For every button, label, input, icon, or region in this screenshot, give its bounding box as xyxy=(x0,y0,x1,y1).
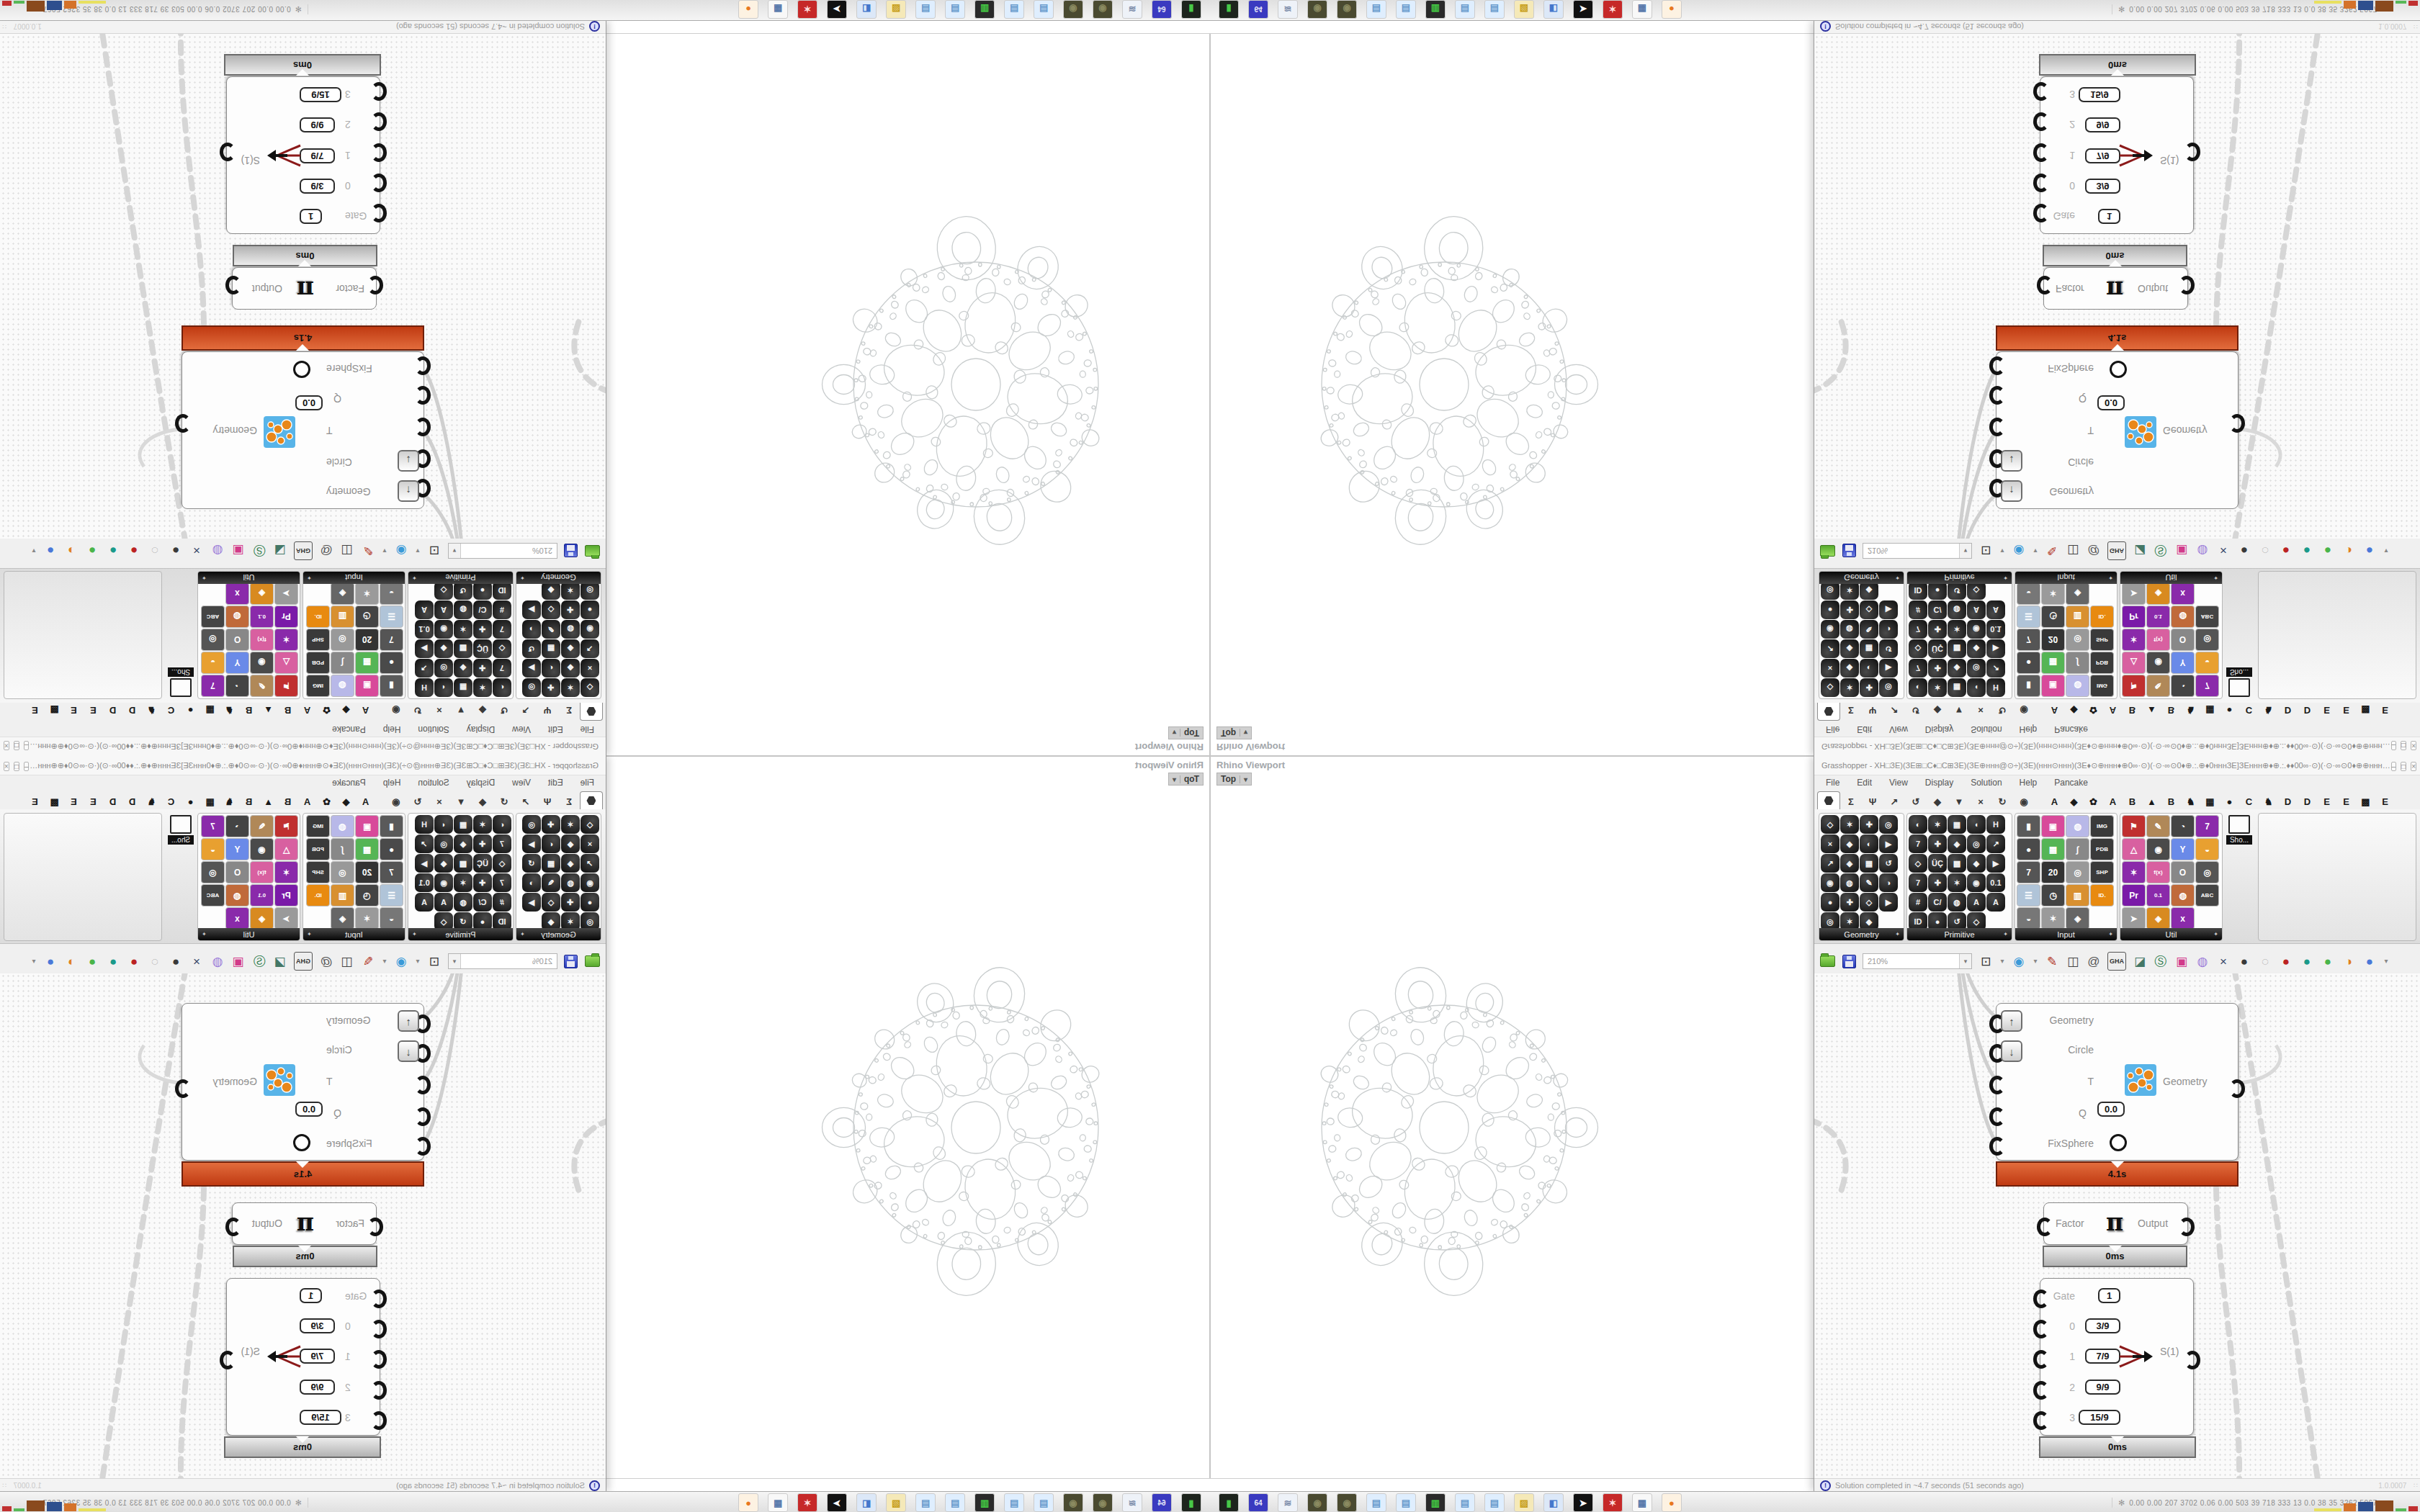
series-value-field[interactable]: 9/9 xyxy=(2085,1380,2120,1395)
menu-edit[interactable]: Edit xyxy=(1857,724,1872,734)
zoom-extents-button[interactable]: ⊡ xyxy=(1978,953,1993,969)
maximize-button[interactable]: □ xyxy=(2401,762,2406,771)
bulb-button[interactable]: ◍ xyxy=(2195,543,2210,559)
input-socket-q[interactable] xyxy=(415,1107,431,1126)
menu-view[interactable]: View xyxy=(1889,778,1908,788)
flatten-down-icon[interactable]: ↓ xyxy=(398,450,419,472)
component-icon[interactable]: ◎ xyxy=(201,861,225,883)
component-icon[interactable]: ◆ xyxy=(1840,659,1859,678)
bulb-button[interactable]: ◍ xyxy=(210,953,225,969)
zoom-combo[interactable]: 210% ▾ xyxy=(448,953,557,969)
tab-sets[interactable]: Ψ xyxy=(537,703,558,719)
component-icon[interactable]: C/ xyxy=(473,893,492,912)
component-icon[interactable]: ▮ xyxy=(380,815,403,837)
component-icon[interactable]: 7 xyxy=(201,815,225,837)
plugin-tab-12[interactable]: D xyxy=(122,796,142,809)
component-icon[interactable]: 0.1 xyxy=(1986,620,2005,639)
open-file-button[interactable] xyxy=(585,543,600,559)
component-icon[interactable]: ◎ xyxy=(434,834,453,853)
plugin-tab-0[interactable]: A xyxy=(2045,703,2064,716)
stream-filter-component[interactable]: Gate103/917/929/9315/9 S(1) xyxy=(2040,76,2194,234)
component-icon[interactable]: ◆ xyxy=(1967,854,1986,873)
component-icon[interactable]: ◈ xyxy=(1840,639,1859,658)
output-socket-geometry[interactable] xyxy=(2229,414,2245,433)
chevron-down-icon[interactable]: ▾ xyxy=(31,953,37,969)
series-value-field[interactable]: 1 xyxy=(300,1288,322,1303)
chevron-down-icon[interactable]: ▾ xyxy=(2033,543,2038,559)
plugin-tab-15[interactable]: E xyxy=(64,703,84,716)
component-icon[interactable]: ▣ xyxy=(355,815,379,837)
tab-display[interactable]: ◉ xyxy=(2013,703,2035,719)
component-icon[interactable]: ✚ xyxy=(473,834,492,853)
component-icon[interactable]: ◐ xyxy=(542,834,560,853)
component-icon[interactable]: ◍ xyxy=(2066,815,2089,837)
component-icon[interactable]: ▩ xyxy=(454,854,472,873)
component-icon[interactable]: ✶ xyxy=(473,815,492,834)
plugin-tab-9[interactable]: ● xyxy=(181,703,200,716)
grasshopper-window[interactable]: Grasshopper - XH□ЗЕ)(ЗЕ⊞□C♦□C⊞ЗЕ)(ЗЕ⊕ннн… xyxy=(0,21,606,756)
plugin-tab-2[interactable]: ✿ xyxy=(317,703,336,716)
component-icon[interactable]: ◆ xyxy=(561,659,580,678)
zoom-extents-button[interactable]: ⊡ xyxy=(1978,543,1993,559)
input-socket-t[interactable] xyxy=(415,418,431,436)
sketch-pen-button[interactable]: ✎ xyxy=(361,543,375,559)
component-icon[interactable]: ↗ xyxy=(1986,834,2005,853)
component-icon[interactable]: ◉ xyxy=(1967,620,1986,639)
component-icon[interactable]: ● xyxy=(581,600,599,619)
component-icon[interactable]: ✚ xyxy=(473,873,492,892)
component-icon[interactable]: ◍ xyxy=(1948,893,1966,912)
grasshopper-window[interactable]: Grasshopper - XH□ЗЕ)(ЗЕ⊞□C♦□C⊞ЗЕ)(ЗЕ⊕ннн… xyxy=(1814,21,2420,756)
series-value-field[interactable]: 9/9 xyxy=(300,117,335,132)
component-icon[interactable]: ✶ xyxy=(2041,582,2065,605)
maximize-button[interactable]: □ xyxy=(2401,741,2406,750)
drive-green-icon[interactable]: ▮ xyxy=(1181,0,1201,19)
firefox-icon[interactable]: ● xyxy=(1662,0,1682,19)
component-icon[interactable]: ↗ xyxy=(415,834,434,853)
zoom-extents-button[interactable]: ⊡ xyxy=(427,543,442,559)
grasshopper-canvas[interactable]: ↑ ↓ Geometry Circle T Q FixSphere 0.0 xyxy=(1814,973,2420,1478)
component-icon[interactable]: H xyxy=(415,815,434,834)
save-file-button[interactable] xyxy=(1842,953,1856,969)
box-display-button[interactable]: ◫ xyxy=(340,953,354,969)
firefox-icon[interactable]: ● xyxy=(1662,1493,1682,1512)
close-button[interactable]: × xyxy=(2411,762,2416,771)
component-icon[interactable]: ◑ xyxy=(522,620,541,639)
plugin-tab-3[interactable]: A xyxy=(297,703,317,716)
box-display-button[interactable]: ◫ xyxy=(340,543,354,559)
help-box-button[interactable]: ▣ xyxy=(2174,543,2189,559)
component-icon[interactable]: ▥ xyxy=(331,606,354,628)
component-icon[interactable]: Y xyxy=(2171,652,2195,674)
plugin-tab-6[interactable]: B xyxy=(2161,796,2181,809)
grasshopper-title-bar[interactable]: Grasshopper - XH□ЗЕ)(ЗЕ⊞□C♦□C⊞ЗЕ)(ЗЕ⊕ннн… xyxy=(0,737,606,756)
component-icon[interactable]: ↗ xyxy=(1821,854,1839,873)
flatten-down-icon[interactable]: ↓ xyxy=(398,1040,419,1062)
help-box-button[interactable]: ▣ xyxy=(2174,953,2189,969)
component-icon[interactable]: C/ xyxy=(473,600,492,619)
help-box-button[interactable]: ▣ xyxy=(231,953,246,969)
pi-component[interactable]: Factor π Output xyxy=(2043,1202,2188,1245)
component-icon[interactable]: ▦ xyxy=(542,639,560,658)
component-icon[interactable]: ◇ xyxy=(493,854,511,873)
drive-green-icon[interactable]: ▮ xyxy=(1181,1493,1201,1512)
plugin-tab-7[interactable]: ♞ xyxy=(220,796,239,809)
component-icon[interactable]: ▶ xyxy=(1879,834,1898,853)
menu-solution[interactable]: Solution xyxy=(418,778,449,788)
component-icon[interactable]: ✶ xyxy=(1948,873,1966,892)
q-value-field[interactable]: 0.0 xyxy=(295,395,323,410)
plugin-tab-12[interactable]: D xyxy=(2278,703,2298,716)
component-icon[interactable]: ✶ xyxy=(1840,678,1859,697)
menu-pancake[interactable]: Pancake xyxy=(2054,778,2088,788)
component-icon[interactable]: ▶ xyxy=(522,834,541,853)
plugin-tab-9[interactable]: ● xyxy=(181,796,200,809)
rhino-viewport[interactable]: Rhino Viewport Top ▾ xyxy=(604,33,1210,756)
tab-maths[interactable]: Σ xyxy=(558,793,580,809)
component-icon[interactable]: ◒ xyxy=(201,652,225,674)
chevron-down-icon[interactable]: ▾ xyxy=(2383,953,2389,969)
component-icon[interactable]: ✶ xyxy=(274,861,298,883)
firefox-icon[interactable]: ● xyxy=(738,1493,758,1512)
component-icon[interactable]: ● xyxy=(380,838,403,860)
panel-label[interactable]: Primitive✦ xyxy=(408,572,513,584)
component-icon[interactable]: ◎ xyxy=(522,678,541,697)
plugin-tab-9[interactable]: ● xyxy=(2220,796,2239,809)
input-socket-fixsphere[interactable] xyxy=(415,1137,431,1156)
fixsphere-component[interactable]: ↑ ↓ Geometry Circle T Q FixSphere 0.0 xyxy=(181,1003,424,1161)
component-icon[interactable]: ✚ xyxy=(1860,815,1878,834)
chevron-down-icon[interactable]: ▾ xyxy=(1999,543,2005,559)
component-icon[interactable]: ⚑ xyxy=(2122,675,2146,697)
output-socket-geometry[interactable] xyxy=(2229,1079,2245,1098)
menu-pancake[interactable]: Pancake xyxy=(2054,724,2088,734)
component-icon[interactable]: Y xyxy=(225,652,249,674)
input-socket-fixsphere[interactable] xyxy=(1989,356,2005,375)
tab-curve[interactable]: ↺ xyxy=(493,703,515,719)
component-icon[interactable]: 20 xyxy=(2041,629,2065,651)
wires-button[interactable]: × xyxy=(189,953,204,969)
monitor-icon[interactable]: ▥ xyxy=(974,0,995,19)
component-icon[interactable]: ☰ xyxy=(2017,606,2040,628)
output-socket-s1[interactable] xyxy=(220,143,236,161)
tab-transform[interactable]: ↻ xyxy=(407,793,429,809)
output-socket-s1[interactable] xyxy=(2184,143,2200,161)
component-icon[interactable]: ◷ xyxy=(2041,884,2065,906)
component-icon[interactable]: ◎ xyxy=(2195,861,2219,883)
component-icon[interactable]: ▣ xyxy=(355,675,379,697)
search-button[interactable]: Ⓢ xyxy=(2154,543,2168,559)
floppy-64-icon[interactable]: 64 xyxy=(1152,1493,1172,1512)
component-icon[interactable]: ✶ xyxy=(2122,629,2146,651)
rhino-viewport[interactable]: Rhino Viewport Top ▾ xyxy=(604,756,1210,1479)
component-icon[interactable]: ➤ xyxy=(274,582,298,605)
input-socket-q[interactable] xyxy=(415,386,431,405)
rhino-viewport[interactable]: Rhino Viewport Top ▾ xyxy=(1210,756,1816,1479)
component-icon[interactable]: ◆ xyxy=(434,854,453,873)
menu-edit[interactable]: Edit xyxy=(548,724,563,734)
component-icon[interactable]: ● xyxy=(380,652,403,674)
component-icon[interactable]: ✶ xyxy=(1928,678,1947,697)
open-file-button[interactable] xyxy=(585,953,600,969)
component-icon[interactable]: ◈ xyxy=(561,854,580,873)
series-value-field[interactable]: 3/9 xyxy=(2085,1318,2120,1333)
zoom-combo[interactable]: 210% ▾ xyxy=(448,543,557,559)
save-file-button[interactable] xyxy=(1842,543,1856,559)
series-value-field[interactable]: 1 xyxy=(300,209,322,224)
component-icon[interactable]: 7 xyxy=(380,629,403,651)
component-icon[interactable]: ✎ xyxy=(250,675,274,697)
plugin-tab-1[interactable]: ◆ xyxy=(336,796,356,809)
menu-help[interactable]: Help xyxy=(2020,778,2038,788)
input-socket-factor[interactable] xyxy=(2037,276,2053,294)
preview-eye-button[interactable]: ◉ xyxy=(2012,543,2026,559)
menu-file[interactable]: File xyxy=(581,724,594,734)
component-icon[interactable]: x xyxy=(225,907,249,930)
component-icon[interactable]: ◎ xyxy=(331,629,354,651)
graft-up-icon[interactable]: ↑ xyxy=(398,1010,419,1032)
component-icon[interactable]: ☰ xyxy=(380,606,403,628)
component-icon[interactable]: ◍ xyxy=(1840,873,1859,892)
component-icon[interactable]: 7 xyxy=(493,620,511,639)
component-icon[interactable]: ⚑ xyxy=(2122,815,2146,837)
component-icon[interactable]: ▶ xyxy=(415,639,434,658)
remote-at-button[interactable]: @ xyxy=(2087,953,2101,969)
component-icon[interactable]: 0.1 xyxy=(415,873,434,892)
component-icon[interactable]: ▦ xyxy=(1948,815,1966,834)
component-icon[interactable]: ∫ xyxy=(331,652,354,674)
component-icon[interactable]: ÜÇ xyxy=(1928,639,1947,658)
component-icon[interactable]: ◉ xyxy=(250,652,274,674)
component-icon[interactable]: ◖ xyxy=(434,815,453,834)
tab-sets[interactable]: Ψ xyxy=(537,793,558,809)
component-icon[interactable]: ✶ xyxy=(2041,907,2065,930)
tab-vector[interactable]: ↗ xyxy=(515,703,537,719)
rhino-viewport[interactable]: Rhino Viewport Top ▾ xyxy=(1210,33,1816,756)
component-icon[interactable]: f(x) xyxy=(250,629,274,651)
component-icon[interactable]: ✶ xyxy=(2122,861,2146,883)
save-file-button[interactable] xyxy=(564,543,578,559)
flatten-down-icon[interactable]: ↓ xyxy=(2001,450,2022,472)
gem-orange-button[interactable]: ◑ xyxy=(2341,543,2356,559)
component-icon[interactable]: Y xyxy=(2171,838,2195,860)
plugin-tab-13[interactable]: D xyxy=(2298,703,2317,716)
plugin-tab-13[interactable]: D xyxy=(2298,796,2317,809)
component-icon[interactable]: ◐ xyxy=(1860,834,1878,853)
component-icon[interactable]: f(x) xyxy=(2146,629,2170,651)
tab-params[interactable] xyxy=(580,703,603,721)
cursor-arrow-icon[interactable]: ➤ xyxy=(827,1493,847,1512)
component-icon[interactable]: ◒ xyxy=(2195,652,2219,674)
component-icon[interactable]: ◍ xyxy=(561,873,580,892)
tab-params[interactable] xyxy=(1817,703,1840,721)
component-icon[interactable]: 7 xyxy=(1909,659,1927,678)
menu-solution[interactable]: Solution xyxy=(1971,724,2002,734)
component-icon[interactable]: ◇ xyxy=(581,815,599,834)
menu-help[interactable]: Help xyxy=(2020,724,2038,734)
maximize-button[interactable]: □ xyxy=(14,762,19,771)
gem-green-button[interactable]: ● xyxy=(85,543,99,559)
tab-mesh[interactable]: ▼ xyxy=(1948,703,1970,719)
component-icon[interactable]: ▩ xyxy=(454,639,472,658)
component-icon[interactable]: x xyxy=(2171,582,2195,605)
panel-label[interactable]: Geometry✦ xyxy=(516,572,601,584)
component-icon[interactable]: ◈ xyxy=(1948,834,1966,853)
component-icon[interactable]: ◐ xyxy=(493,815,511,834)
panel-label[interactable]: Util✦ xyxy=(2120,928,2222,940)
component-icon[interactable]: ☰ xyxy=(380,884,403,906)
component-icon[interactable]: ▦ xyxy=(1948,678,1966,697)
box-display-button[interactable]: ◫ xyxy=(2066,953,2080,969)
component-icon[interactable]: ✶ xyxy=(1928,815,1947,834)
panel-label[interactable]: Util✦ xyxy=(198,928,300,940)
red-badge-icon[interactable]: ✶ xyxy=(1603,1493,1623,1512)
plugin-tab-2[interactable]: ✿ xyxy=(2084,796,2103,809)
component-icon[interactable]: ✎ xyxy=(542,873,560,892)
calculator-icon[interactable]: ▦ xyxy=(768,0,788,19)
preview-shaded-button[interactable]: ● xyxy=(2279,953,2293,969)
graft-up-icon[interactable]: ↑ xyxy=(2001,1010,2022,1032)
component-icon[interactable]: IMG xyxy=(306,675,330,697)
dark-globe-icon[interactable]: ◉ xyxy=(1307,1493,1327,1512)
component-icon[interactable]: ✎ xyxy=(250,815,274,837)
red-badge-icon[interactable]: ✶ xyxy=(797,1493,817,1512)
series-value-field[interactable]: 15/9 xyxy=(2079,87,2120,102)
component-icon[interactable]: PDB xyxy=(306,838,330,860)
remote-at-button[interactable]: @ xyxy=(319,953,333,969)
component-icon[interactable]: O xyxy=(2171,629,2195,651)
chevron-down-icon[interactable]: ▾ xyxy=(1959,544,1971,558)
preview-wire-button[interactable]: ◌ xyxy=(148,953,162,969)
tab-sets[interactable]: Ψ xyxy=(1862,703,1883,719)
output-socket-s1[interactable] xyxy=(2184,1351,2200,1369)
component-icon[interactable]: ◖ xyxy=(434,678,453,697)
component-icon[interactable]: O xyxy=(225,629,249,651)
chevron-down-icon[interactable]: ▾ xyxy=(1240,729,1247,737)
component-icon[interactable]: A xyxy=(415,600,434,619)
monitor-icon[interactable]: ▥ xyxy=(1425,1493,1446,1512)
panel-label[interactable]: Util✦ xyxy=(2120,572,2222,584)
component-icon[interactable]: ◎ xyxy=(2066,861,2089,883)
preview-off-button[interactable]: ● xyxy=(2237,953,2251,969)
component-icon[interactable]: ▦ xyxy=(1860,854,1878,873)
folder-yellow-icon[interactable]: ▨ xyxy=(1514,0,1534,19)
tab-mesh[interactable]: ▼ xyxy=(1948,793,1970,809)
component-icon[interactable]: A xyxy=(415,893,434,912)
zoom-extents-button[interactable]: ⊡ xyxy=(427,953,442,969)
component-icon[interactable]: ◈ xyxy=(331,907,354,930)
panel-label[interactable]: Primitive✦ xyxy=(1907,572,2012,584)
preview-wire-button[interactable]: ◌ xyxy=(2258,953,2272,969)
notepad-icon[interactable]: ▤ xyxy=(1034,1493,1054,1512)
panel-label[interactable]: Primitive✦ xyxy=(1907,928,2012,940)
component-icon[interactable]: # xyxy=(1909,893,1927,912)
component-icon[interactable]: ◈ xyxy=(1840,854,1859,873)
component-icon[interactable]: ◉ xyxy=(250,838,274,860)
component-icon[interactable]: ÜÇ xyxy=(473,854,492,873)
panel-overflow[interactable]: Sho... xyxy=(2226,815,2252,845)
component-icon[interactable]: △ xyxy=(274,838,298,860)
output-socket-output[interactable] xyxy=(225,1218,241,1236)
bulb-button[interactable]: ◍ xyxy=(210,543,225,559)
tab-curve[interactable]: ↺ xyxy=(1905,793,1927,809)
open-file-button[interactable] xyxy=(1820,543,1835,559)
calculator-icon[interactable]: ▦ xyxy=(768,1493,788,1512)
plugin-tab-12[interactable]: D xyxy=(122,703,142,716)
component-icon[interactable]: Pr xyxy=(274,606,298,628)
component-icon[interactable]: # xyxy=(493,893,511,912)
plug-audio-icon[interactable]: ◧ xyxy=(1543,1493,1564,1512)
series-value-field[interactable]: 7/9 xyxy=(300,1349,335,1364)
series-value-field[interactable]: 7/9 xyxy=(2085,148,2120,163)
component-icon[interactable]: △ xyxy=(274,652,298,674)
component-icon[interactable]: ◎ xyxy=(1879,815,1898,834)
component-icon[interactable]: ABC xyxy=(2195,606,2219,628)
component-icon[interactable]: ◑ xyxy=(522,873,541,892)
component-icon[interactable]: Pr xyxy=(274,884,298,906)
component-icon[interactable]: ◎ xyxy=(2195,629,2219,651)
gem-teal-button[interactable]: ● xyxy=(2300,953,2314,969)
doc-capture-button[interactable]: ◪ xyxy=(273,543,287,559)
component-icon[interactable]: ☰ xyxy=(2017,884,2040,906)
q-value-field[interactable]: 0.0 xyxy=(2097,1102,2125,1117)
zoom-combo[interactable]: 210% ▾ xyxy=(1863,543,1972,559)
plugin-tab-16[interactable]: ▩ xyxy=(2356,796,2375,809)
component-icon[interactable]: 7 xyxy=(201,675,225,697)
menu-help[interactable]: Help xyxy=(383,724,401,734)
component-icon[interactable]: ◇ xyxy=(1909,854,1927,873)
preview-eye-button[interactable]: ◉ xyxy=(394,953,408,969)
component-icon[interactable]: ◉ xyxy=(434,873,453,892)
plugin-tab-7[interactable]: ♞ xyxy=(2181,703,2200,716)
doc-capture-button[interactable]: ◪ xyxy=(2133,953,2147,969)
calculator-icon[interactable]: ▦ xyxy=(1632,0,1652,19)
component-icon[interactable]: ◍ xyxy=(2171,884,2195,906)
component-icon[interactable]: ▶ xyxy=(1879,893,1898,912)
box-display-button[interactable]: ◫ xyxy=(2066,543,2080,559)
viewport-tab-top[interactable]: Top ▾ xyxy=(1168,726,1204,739)
grasshopper-canvas[interactable]: ↑ ↓ Geometry Circle T Q FixSphere 0.0 xyxy=(1814,34,2420,539)
component-icon[interactable]: ▮ xyxy=(380,675,403,697)
search-button[interactable]: Ⓢ xyxy=(252,543,266,559)
plug-audio-icon[interactable]: ◧ xyxy=(1543,0,1564,19)
minimize-button[interactable]: – xyxy=(2391,741,2397,750)
component-icon[interactable]: Pr xyxy=(2122,606,2146,628)
plugin-tab-10[interactable]: C xyxy=(2239,703,2259,716)
panel-label[interactable]: Input✦ xyxy=(303,572,405,584)
panel-label[interactable]: Geometry✦ xyxy=(1819,928,1904,940)
flatten-down-icon[interactable]: ↓ xyxy=(2001,1040,2022,1062)
component-icon[interactable]: ✶ xyxy=(561,678,580,697)
component-icon[interactable]: ◍ xyxy=(331,675,354,697)
tab-surface[interactable]: ◆ xyxy=(472,703,493,719)
component-icon[interactable]: ✶ xyxy=(355,582,379,605)
drive-green-icon[interactable]: ▮ xyxy=(1219,1493,1239,1512)
component-icon[interactable]: ✚ xyxy=(1928,620,1947,639)
chevron-down-icon[interactable]: ▾ xyxy=(382,543,387,559)
preview-shaded-button[interactable]: ● xyxy=(127,953,141,969)
notepad-icon[interactable]: ▤ xyxy=(945,0,965,19)
resize-grip-icon[interactable]: ∷ xyxy=(2,1482,6,1489)
component-icon[interactable]: ◖ xyxy=(1967,678,1986,697)
component-icon[interactable]: ◇ xyxy=(1860,893,1878,912)
component-icon[interactable]: ◖ xyxy=(1967,815,1986,834)
component-icon[interactable]: ▶ xyxy=(1879,659,1898,678)
tab-maths[interactable]: Σ xyxy=(558,703,580,719)
preview-off-button[interactable]: ● xyxy=(169,543,183,559)
component-icon[interactable]: ◒ xyxy=(380,582,403,605)
tab-display[interactable]: ◉ xyxy=(385,793,407,809)
